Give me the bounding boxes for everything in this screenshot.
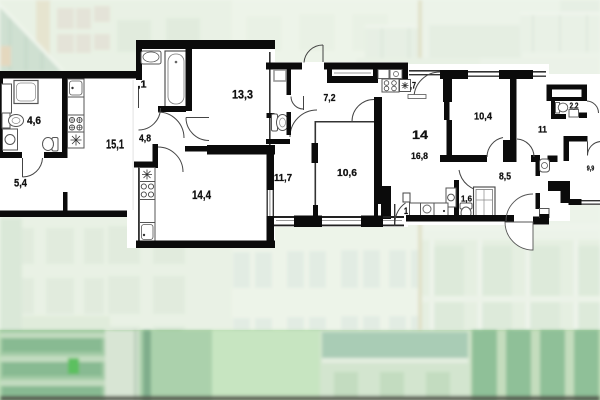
svg-text:5,4: 5,4: [14, 178, 28, 190]
svg-text:11: 11: [538, 125, 548, 136]
svg-text:1,6: 1,6: [461, 194, 472, 204]
svg-text:15,1: 15,1: [106, 138, 124, 152]
svg-text:,1: ,1: [138, 79, 147, 91]
svg-text:14,4: 14,4: [192, 188, 211, 202]
svg-text:8,5: 8,5: [499, 172, 511, 183]
svg-text:13,3: 13,3: [232, 90, 253, 102]
svg-text:14: 14: [412, 128, 428, 142]
svg-text:10,4: 10,4: [474, 112, 492, 123]
svg-text:16,8: 16,8: [411, 151, 428, 162]
svg-text:10,6: 10,6: [337, 167, 357, 179]
svg-text:4,6: 4,6: [27, 115, 41, 127]
svg-text:2,2: 2,2: [570, 101, 579, 111]
svg-text:11,7: 11,7: [274, 173, 292, 184]
svg-text:1: 1: [404, 206, 408, 216]
svg-text:7,2: 7,2: [324, 92, 336, 104]
svg-text:9,9: 9,9: [587, 164, 595, 173]
svg-text:4,8: 4,8: [139, 133, 151, 145]
